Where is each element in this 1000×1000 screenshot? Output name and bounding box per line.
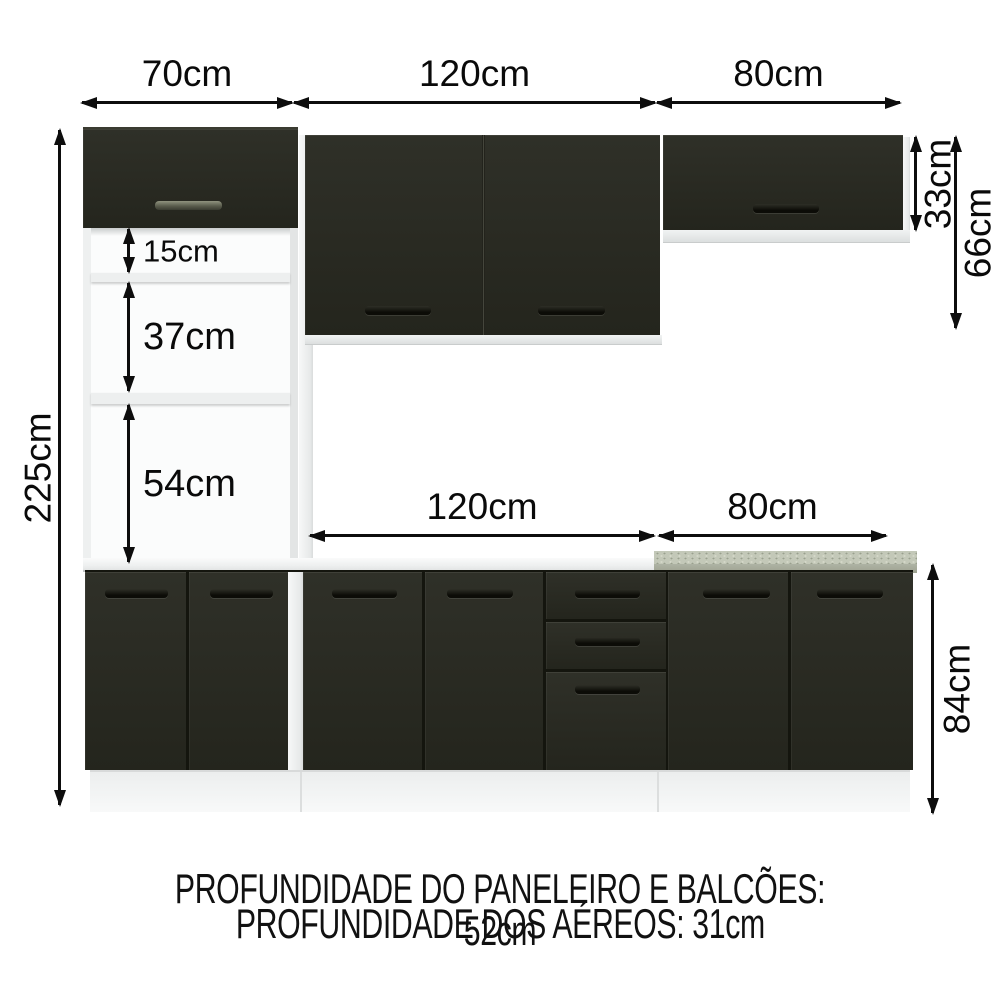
base-door <box>791 572 913 770</box>
door-handle <box>365 306 431 315</box>
pantry-shelf <box>91 272 290 282</box>
base-door <box>668 572 788 770</box>
pantry-shelf <box>91 392 290 404</box>
dim-mid-120cm: 120cm <box>310 534 654 537</box>
dim-label: 84cm <box>939 644 976 734</box>
base-door <box>425 572 543 770</box>
door-handle <box>210 589 273 598</box>
base-door <box>189 572 288 770</box>
dim-right-33cm: 33cm <box>914 137 917 230</box>
base-door <box>85 572 186 770</box>
dim-shelf-15cm: 15cm <box>127 229 130 272</box>
dim-top-80cm: 80cm <box>657 101 900 104</box>
dim-label: 66cm <box>960 187 997 277</box>
drawer <box>546 622 666 669</box>
dim-label: 80cm <box>727 488 817 525</box>
dim-top-70cm: 70cm <box>82 101 292 104</box>
dim-top-120cm: 120cm <box>294 101 655 104</box>
plinth-seam <box>657 772 659 812</box>
door-handle <box>332 589 397 598</box>
door-handle <box>753 204 819 213</box>
dim-label: 37cm <box>143 318 236 356</box>
drawer-handle <box>575 685 640 694</box>
door-handle <box>447 589 513 598</box>
dim-right-84cm: 84cm <box>931 565 934 813</box>
door-handle <box>703 589 770 598</box>
door-handle <box>538 306 605 315</box>
base-divider-panel <box>288 572 303 770</box>
kitchen-dimension-diagram: 70cm 120cm 80cm 225cm 15cm 37cm 54cm 33c… <box>0 0 1000 1000</box>
pantry-top-door <box>83 127 298 230</box>
door-handle <box>817 589 883 598</box>
pantry-shelf-frame <box>83 228 298 565</box>
door-handle <box>155 201 222 210</box>
drawer-handle <box>575 637 640 646</box>
drawer-handle <box>575 589 640 598</box>
dim-shelf-54cm: 54cm <box>127 405 130 562</box>
drawer <box>546 672 666 770</box>
dim-label: 70cm <box>142 55 232 92</box>
dim-right-66cm: 66cm <box>954 137 957 328</box>
dim-label: 15cm <box>143 235 219 266</box>
footer-text: PROFUNDIDADE DOS AÉREOS: 31cm <box>236 903 765 945</box>
base-door <box>303 572 422 770</box>
plinth <box>90 770 910 812</box>
countertop-granite <box>654 551 917 564</box>
door-divider <box>482 135 485 335</box>
dim-mid-80cm: 80cm <box>659 534 886 537</box>
dim-label: 54cm <box>143 465 236 503</box>
dim-left-225cm: 225cm <box>58 130 61 805</box>
dim-shelf-37cm: 37cm <box>127 283 130 391</box>
wall-cabinet-80-bottom <box>663 230 910 243</box>
drawer <box>546 572 666 619</box>
wall-cabinet-120 <box>305 135 660 335</box>
door-handle <box>105 589 168 598</box>
wall-cabinet-120-bottom <box>305 335 662 345</box>
footer-depth-note-2: PROFUNDIDADE DOS AÉREOS: 31cm <box>0 903 1000 945</box>
wall-cabinet-80 <box>663 135 903 230</box>
plinth-seam <box>300 772 302 812</box>
dim-label: 225cm <box>20 412 57 523</box>
dim-label: 80cm <box>733 55 823 92</box>
dim-label: 120cm <box>426 488 537 525</box>
dim-label: 120cm <box>419 55 530 92</box>
